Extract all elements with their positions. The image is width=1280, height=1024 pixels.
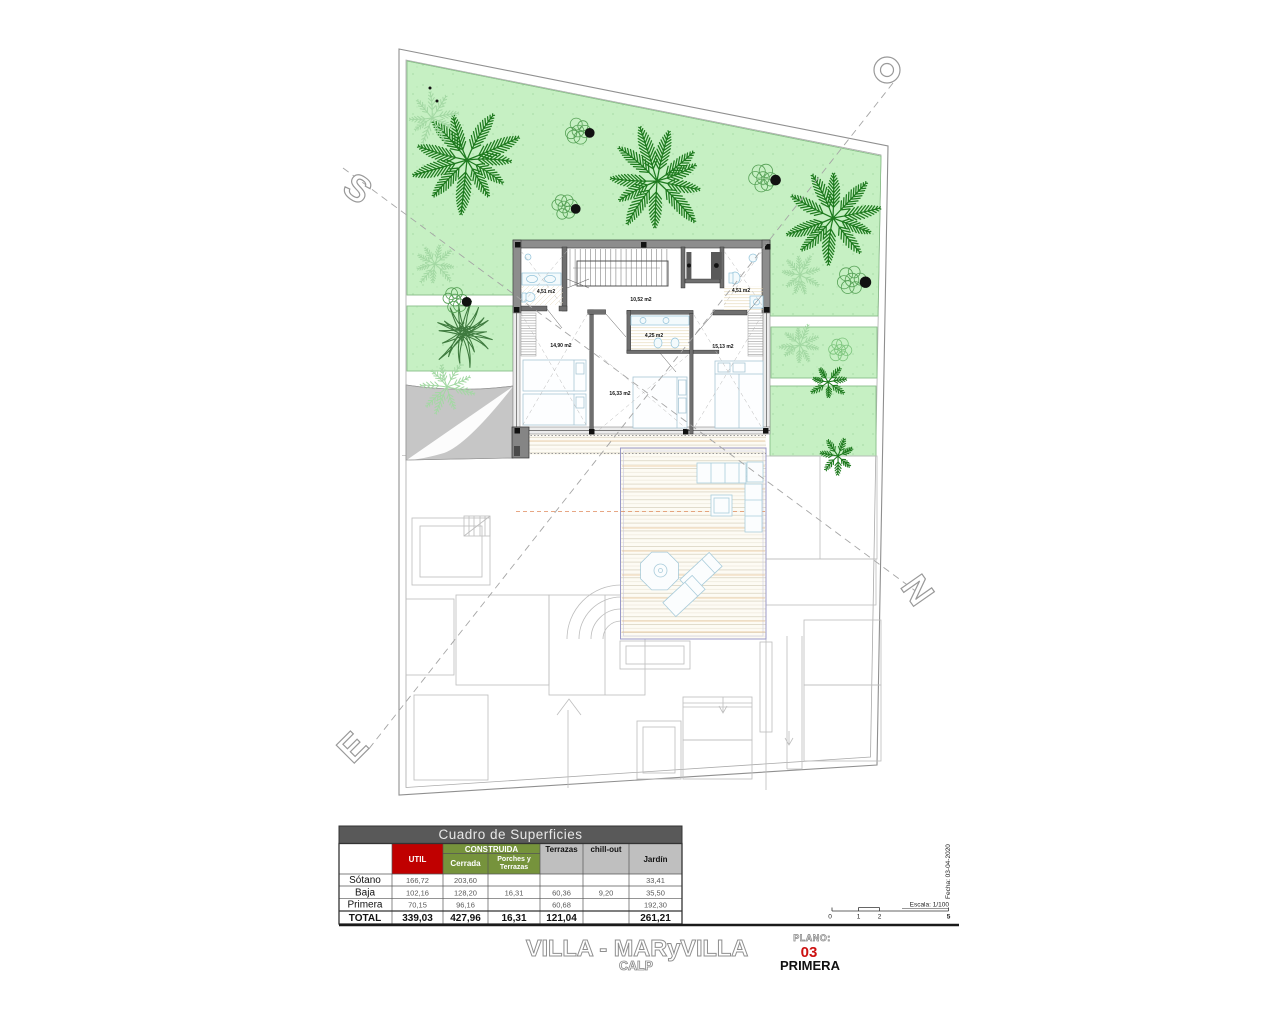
svg-text:16,31: 16,31 xyxy=(501,913,526,924)
svg-text:427,96: 427,96 xyxy=(450,913,481,924)
svg-text:10,52 m2: 10,52 m2 xyxy=(630,297,651,303)
svg-text:70,15: 70,15 xyxy=(408,901,427,910)
svg-text:16,31: 16,31 xyxy=(505,888,524,897)
svg-text:33,41: 33,41 xyxy=(646,876,665,885)
svg-text:203,60: 203,60 xyxy=(454,876,477,885)
svg-text:UTIL: UTIL xyxy=(409,855,427,864)
svg-text:96,16: 96,16 xyxy=(456,901,475,910)
svg-text:Porches y: Porches y xyxy=(497,856,531,863)
svg-text:PLANO:: PLANO: xyxy=(793,933,831,943)
svg-text:Jardín: Jardín xyxy=(643,855,667,864)
svg-text:4,51 m2: 4,51 m2 xyxy=(537,289,556,295)
svg-text:CONSTRUIDA: CONSTRUIDA xyxy=(465,845,519,854)
svg-text:TOTAL: TOTAL xyxy=(349,913,381,924)
svg-text:60,68: 60,68 xyxy=(552,901,571,910)
svg-text:Terrazas: Terrazas xyxy=(545,845,578,854)
svg-text:PRIMERA: PRIMERA xyxy=(780,958,841,973)
svg-text:Escala: 1/100: Escala: 1/100 xyxy=(910,902,950,909)
svg-text:339,03: 339,03 xyxy=(402,913,433,924)
svg-text:2: 2 xyxy=(878,914,882,921)
svg-text:102,16: 102,16 xyxy=(406,888,429,897)
svg-text:192,30: 192,30 xyxy=(644,901,667,910)
svg-text:1: 1 xyxy=(857,914,861,921)
svg-text:5: 5 xyxy=(947,914,951,921)
svg-text:60,36: 60,36 xyxy=(552,888,571,897)
svg-text:Primera: Primera xyxy=(347,900,382,911)
svg-text:261,21: 261,21 xyxy=(640,913,671,924)
svg-text:35,50: 35,50 xyxy=(646,888,665,897)
svg-text:9,20: 9,20 xyxy=(599,888,614,897)
svg-text:16,33 m2: 16,33 m2 xyxy=(609,391,630,397)
svg-text:128,20: 128,20 xyxy=(454,888,477,897)
svg-text:166,72: 166,72 xyxy=(406,876,429,885)
svg-text:4,25 m2: 4,25 m2 xyxy=(645,333,664,339)
svg-text:Cuadro de Superficies: Cuadro de Superficies xyxy=(438,827,582,842)
svg-text:0: 0 xyxy=(828,914,832,921)
svg-text:Baja: Baja xyxy=(355,887,375,898)
svg-text:chill-out: chill-out xyxy=(590,845,621,854)
svg-text:15,13 m2: 15,13 m2 xyxy=(712,344,733,350)
svg-text:Fecha: 03-04-2020: Fecha: 03-04-2020 xyxy=(945,844,952,899)
svg-text:Sótano: Sótano xyxy=(349,875,381,886)
svg-text:Terrazas: Terrazas xyxy=(500,864,528,871)
svg-text:121,04: 121,04 xyxy=(546,913,577,924)
svg-text:CALP: CALP xyxy=(619,959,653,973)
svg-text:VILLA - MARyVILLA: VILLA - MARyVILLA xyxy=(526,935,748,961)
svg-text:Cerrada: Cerrada xyxy=(450,859,481,868)
svg-text:4,51 m2: 4,51 m2 xyxy=(732,288,751,294)
